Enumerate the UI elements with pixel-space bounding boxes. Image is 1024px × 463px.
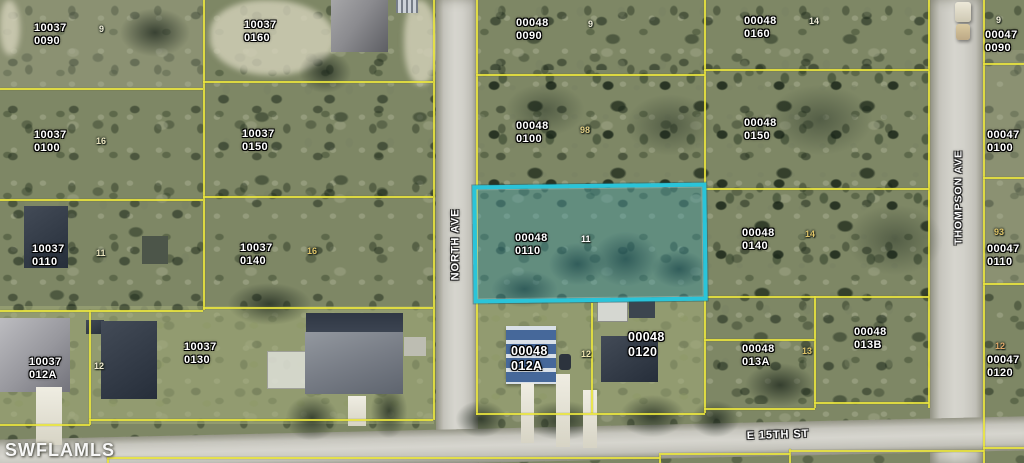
parcel-label: 000480110 [515, 232, 548, 258]
parcel-label: 10037012A [29, 356, 62, 382]
aerial-parcel-map: 916111216998111214141399312 100370090100… [0, 0, 1024, 463]
parcel-label: 100370130 [184, 341, 217, 367]
parcel-label: 100370110 [32, 243, 65, 269]
parcel-label: 100370100 [34, 129, 67, 155]
parcel-label: 000480090 [516, 17, 549, 43]
parcel-labels-layer: 1003700901003701601003701001003701501003… [0, 0, 1024, 463]
parcel-label: 100370140 [240, 242, 273, 268]
parcel-label: 000480150 [744, 117, 777, 143]
mls-watermark: SWFLAMLS [5, 440, 115, 461]
parcel-label: 100370160 [244, 19, 277, 45]
parcel-label: 000470110 [987, 243, 1020, 269]
parcel-label: 000470100 [987, 129, 1020, 155]
parcel-label: 000480160 [744, 15, 777, 41]
thompson-ave-label: THOMPSON AVE [953, 141, 966, 255]
parcel-label: 000470120 [987, 354, 1020, 380]
parcel-label: 00048012A [511, 344, 548, 374]
parcel-label: 000470090 [985, 29, 1018, 55]
north-ave-label: NORTH AVE [450, 195, 463, 295]
parcel-label: 000480100 [516, 120, 549, 146]
parcel-label: 100370150 [242, 128, 275, 154]
parcel-label: 000480120 [628, 330, 665, 360]
parcel-label: 00048013A [742, 343, 775, 369]
parcel-label: 00048013B [854, 326, 887, 352]
parcel-label: 100370090 [34, 22, 67, 48]
parcel-label: 000480140 [742, 227, 775, 253]
